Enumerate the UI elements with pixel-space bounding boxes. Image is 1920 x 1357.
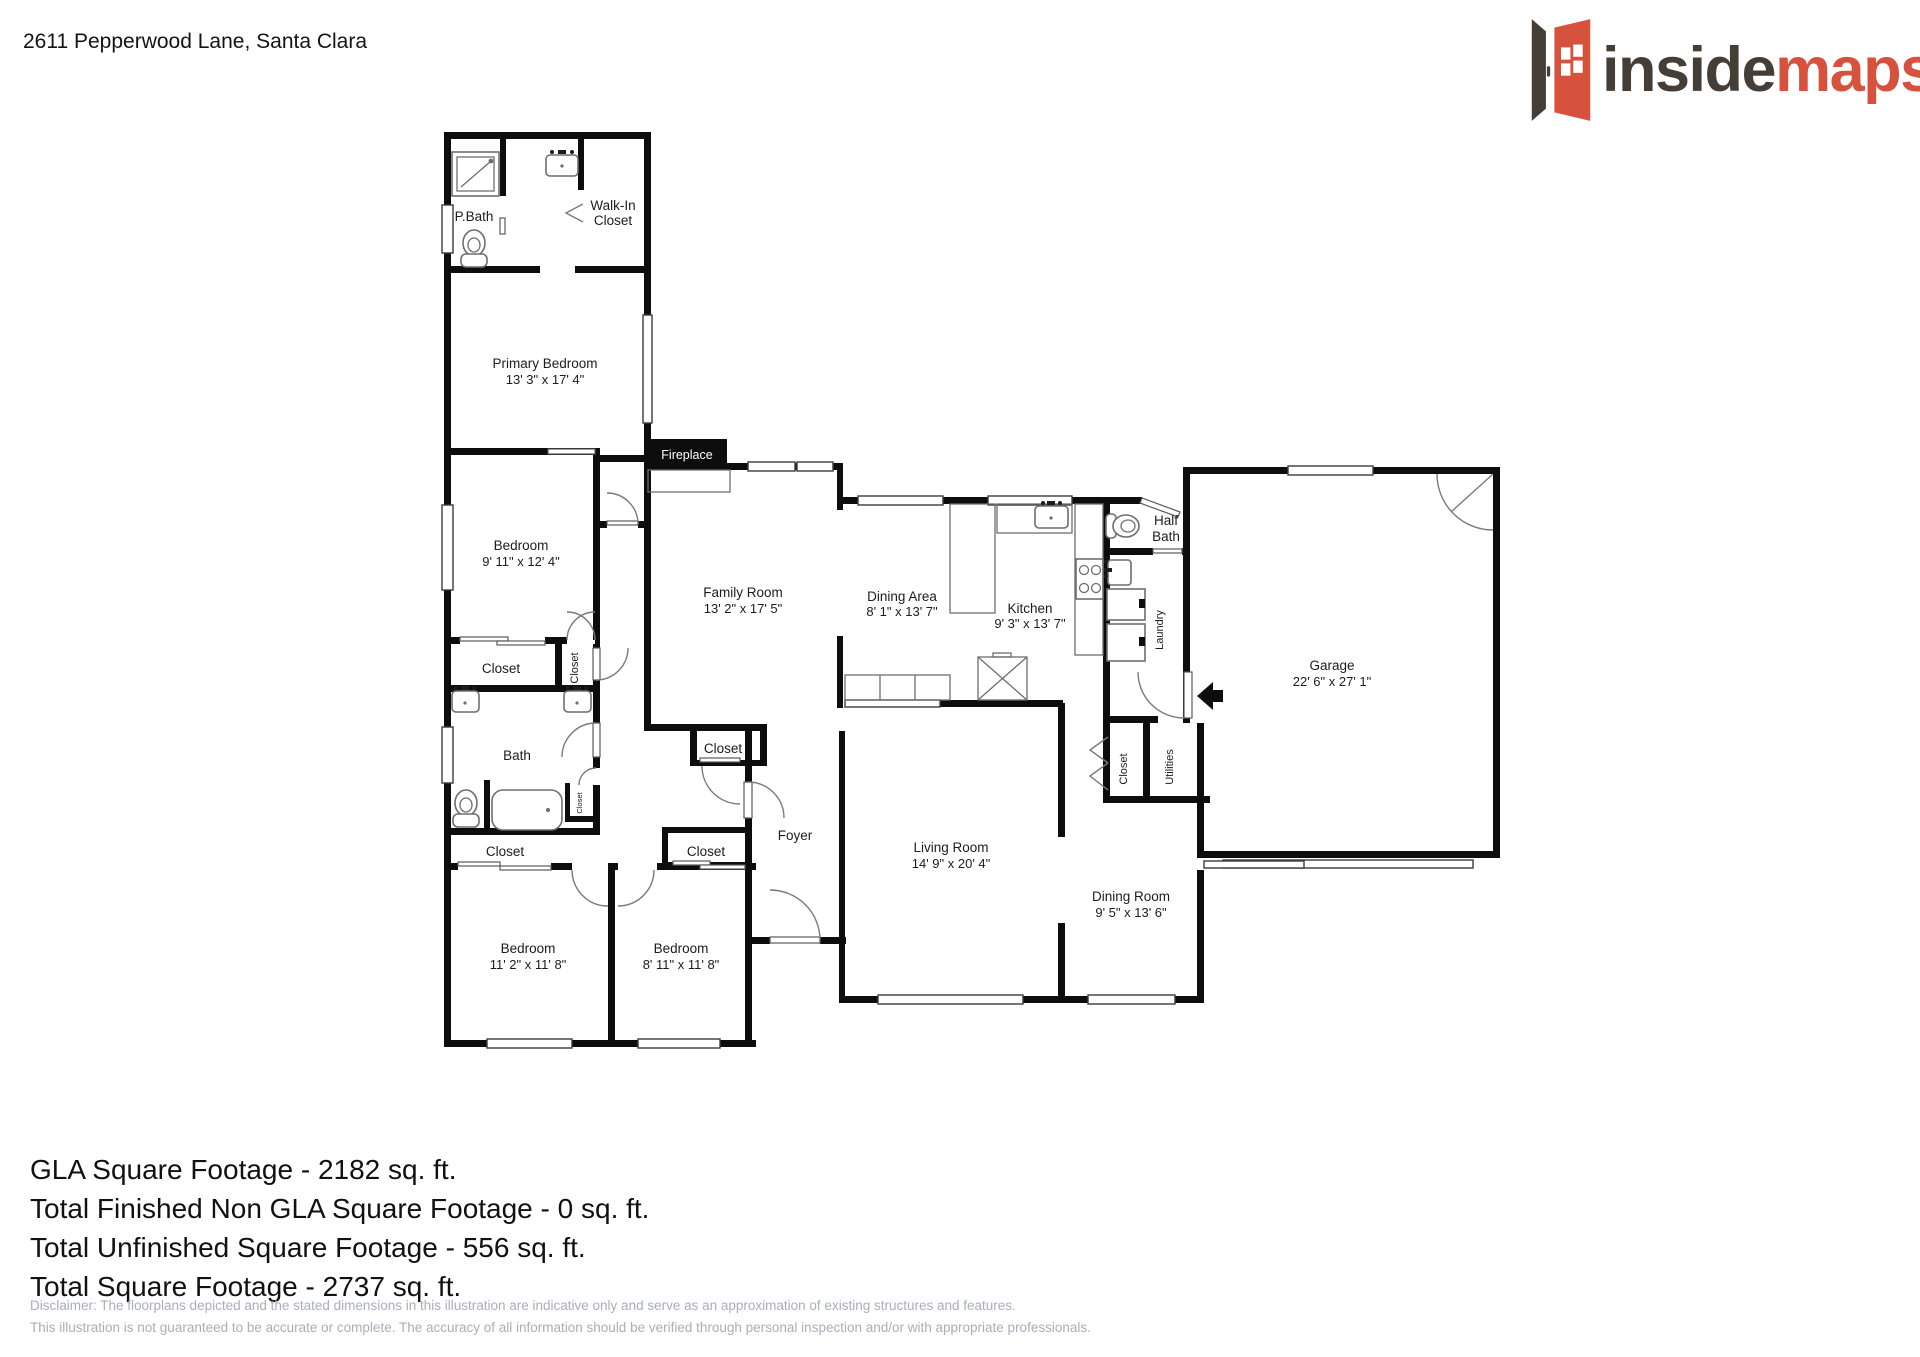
- room-label-dining-room: Dining Room: [1092, 889, 1170, 904]
- room-label-halfbath-1: Half: [1154, 513, 1178, 528]
- x-box: [978, 653, 1027, 700]
- room-label-family: Family Room: [703, 585, 783, 600]
- room-label-closet-a2: Closet: [569, 652, 581, 683]
- room-dims-family: 13' 2" x 17' 5": [704, 601, 783, 616]
- room-label-dining-area: Dining Area: [867, 589, 937, 604]
- page: { "header": { "address": "2611 Pepperwoo…: [0, 0, 1920, 1357]
- room-dims-dining-room: 9' 5" x 13' 6": [1095, 905, 1167, 920]
- toilet-icon: [1106, 514, 1139, 538]
- room-label-closet-util: Closet: [1118, 753, 1130, 784]
- room-dims-bedroom-s: 8' 11" x 11' 8": [643, 957, 720, 972]
- room-label-closet-b: Closet: [486, 844, 525, 859]
- washer-icon: [1107, 589, 1145, 620]
- cabinet-row: [845, 675, 950, 700]
- dryer-icon: [1107, 624, 1145, 661]
- fireplace-label: Fireplace: [661, 448, 712, 462]
- entry-arrow-icon: [1197, 682, 1223, 710]
- toilet-icon: [453, 790, 479, 827]
- room-label-closet-a: Closet: [482, 661, 521, 676]
- shower-icon: [452, 152, 499, 196]
- fixtures: Fireplace: [452, 150, 1145, 830]
- room-label-foyer: Foyer: [778, 828, 813, 843]
- room-label-bedroom-mid: Bedroom: [494, 538, 549, 553]
- room-dims-living: 14' 9" x 20' 4": [912, 856, 991, 871]
- room-label-bath-closet: Closet: [575, 791, 584, 813]
- walls: [444, 132, 1500, 1047]
- fireplace: Fireplace: [648, 439, 730, 492]
- sink-icon: [546, 150, 578, 176]
- room-label-living: Living Room: [913, 840, 988, 855]
- room-label-walkin-1: Walk-In: [590, 198, 635, 213]
- summary-unfinished: Total Unfinished Square Footage - 556 sq…: [30, 1228, 649, 1267]
- room-label-garage: Garage: [1309, 658, 1354, 673]
- toilet-icon: [461, 230, 487, 267]
- room-label-bedroom-s: Bedroom: [654, 941, 709, 956]
- room-label-halfbath-2: Bath: [1152, 529, 1180, 544]
- room-dims-bedroom-mid: 9' 11" x 12' 4": [482, 554, 560, 569]
- room-label-laundry: Laundry: [1154, 610, 1166, 650]
- room-label-primary: Primary Bedroom: [492, 356, 597, 371]
- room-dims-kitchen: 9' 3" x 13' 7": [994, 616, 1066, 631]
- bathtub-icon: [492, 790, 562, 830]
- laundry-sink-icon: [1104, 560, 1131, 585]
- room-label-walkin-2: Closet: [594, 213, 633, 228]
- room-label-pbath: P.Bath: [455, 209, 494, 224]
- square-footage-summary: GLA Square Footage - 2182 sq. ft. Total …: [30, 1150, 649, 1306]
- room-dims-garage: 22' 6" x 27' 1": [1293, 674, 1372, 689]
- room-label-bedroom-sw: Bedroom: [501, 941, 556, 956]
- room-label-closet-c: Closet: [704, 741, 743, 756]
- summary-gla: GLA Square Footage - 2182 sq. ft.: [30, 1150, 649, 1189]
- room-label-closet-d: Closet: [687, 844, 726, 859]
- room-dims-bedroom-sw: 11' 2" x 11' 8": [490, 957, 567, 972]
- room-dims-dining-area: 8' 1" x 13' 7": [866, 604, 938, 619]
- disclaimer: Disclaimer: The floorplans depicted and …: [30, 1295, 1091, 1339]
- room-label-utilities: Utilities: [1164, 749, 1176, 785]
- room-dims-primary: 13' 3" x 17' 4": [506, 372, 585, 387]
- disclaimer-line-1: Disclaimer: The floorplans depicted and …: [30, 1295, 1091, 1317]
- room-label-bath: Bath: [503, 748, 531, 763]
- room-label-kitchen: Kitchen: [1007, 601, 1052, 616]
- stove-icon: [1076, 559, 1103, 599]
- summary-non-gla: Total Finished Non GLA Square Footage - …: [30, 1189, 649, 1228]
- disclaimer-line-2: This illustration is not guaranteed to b…: [30, 1317, 1091, 1339]
